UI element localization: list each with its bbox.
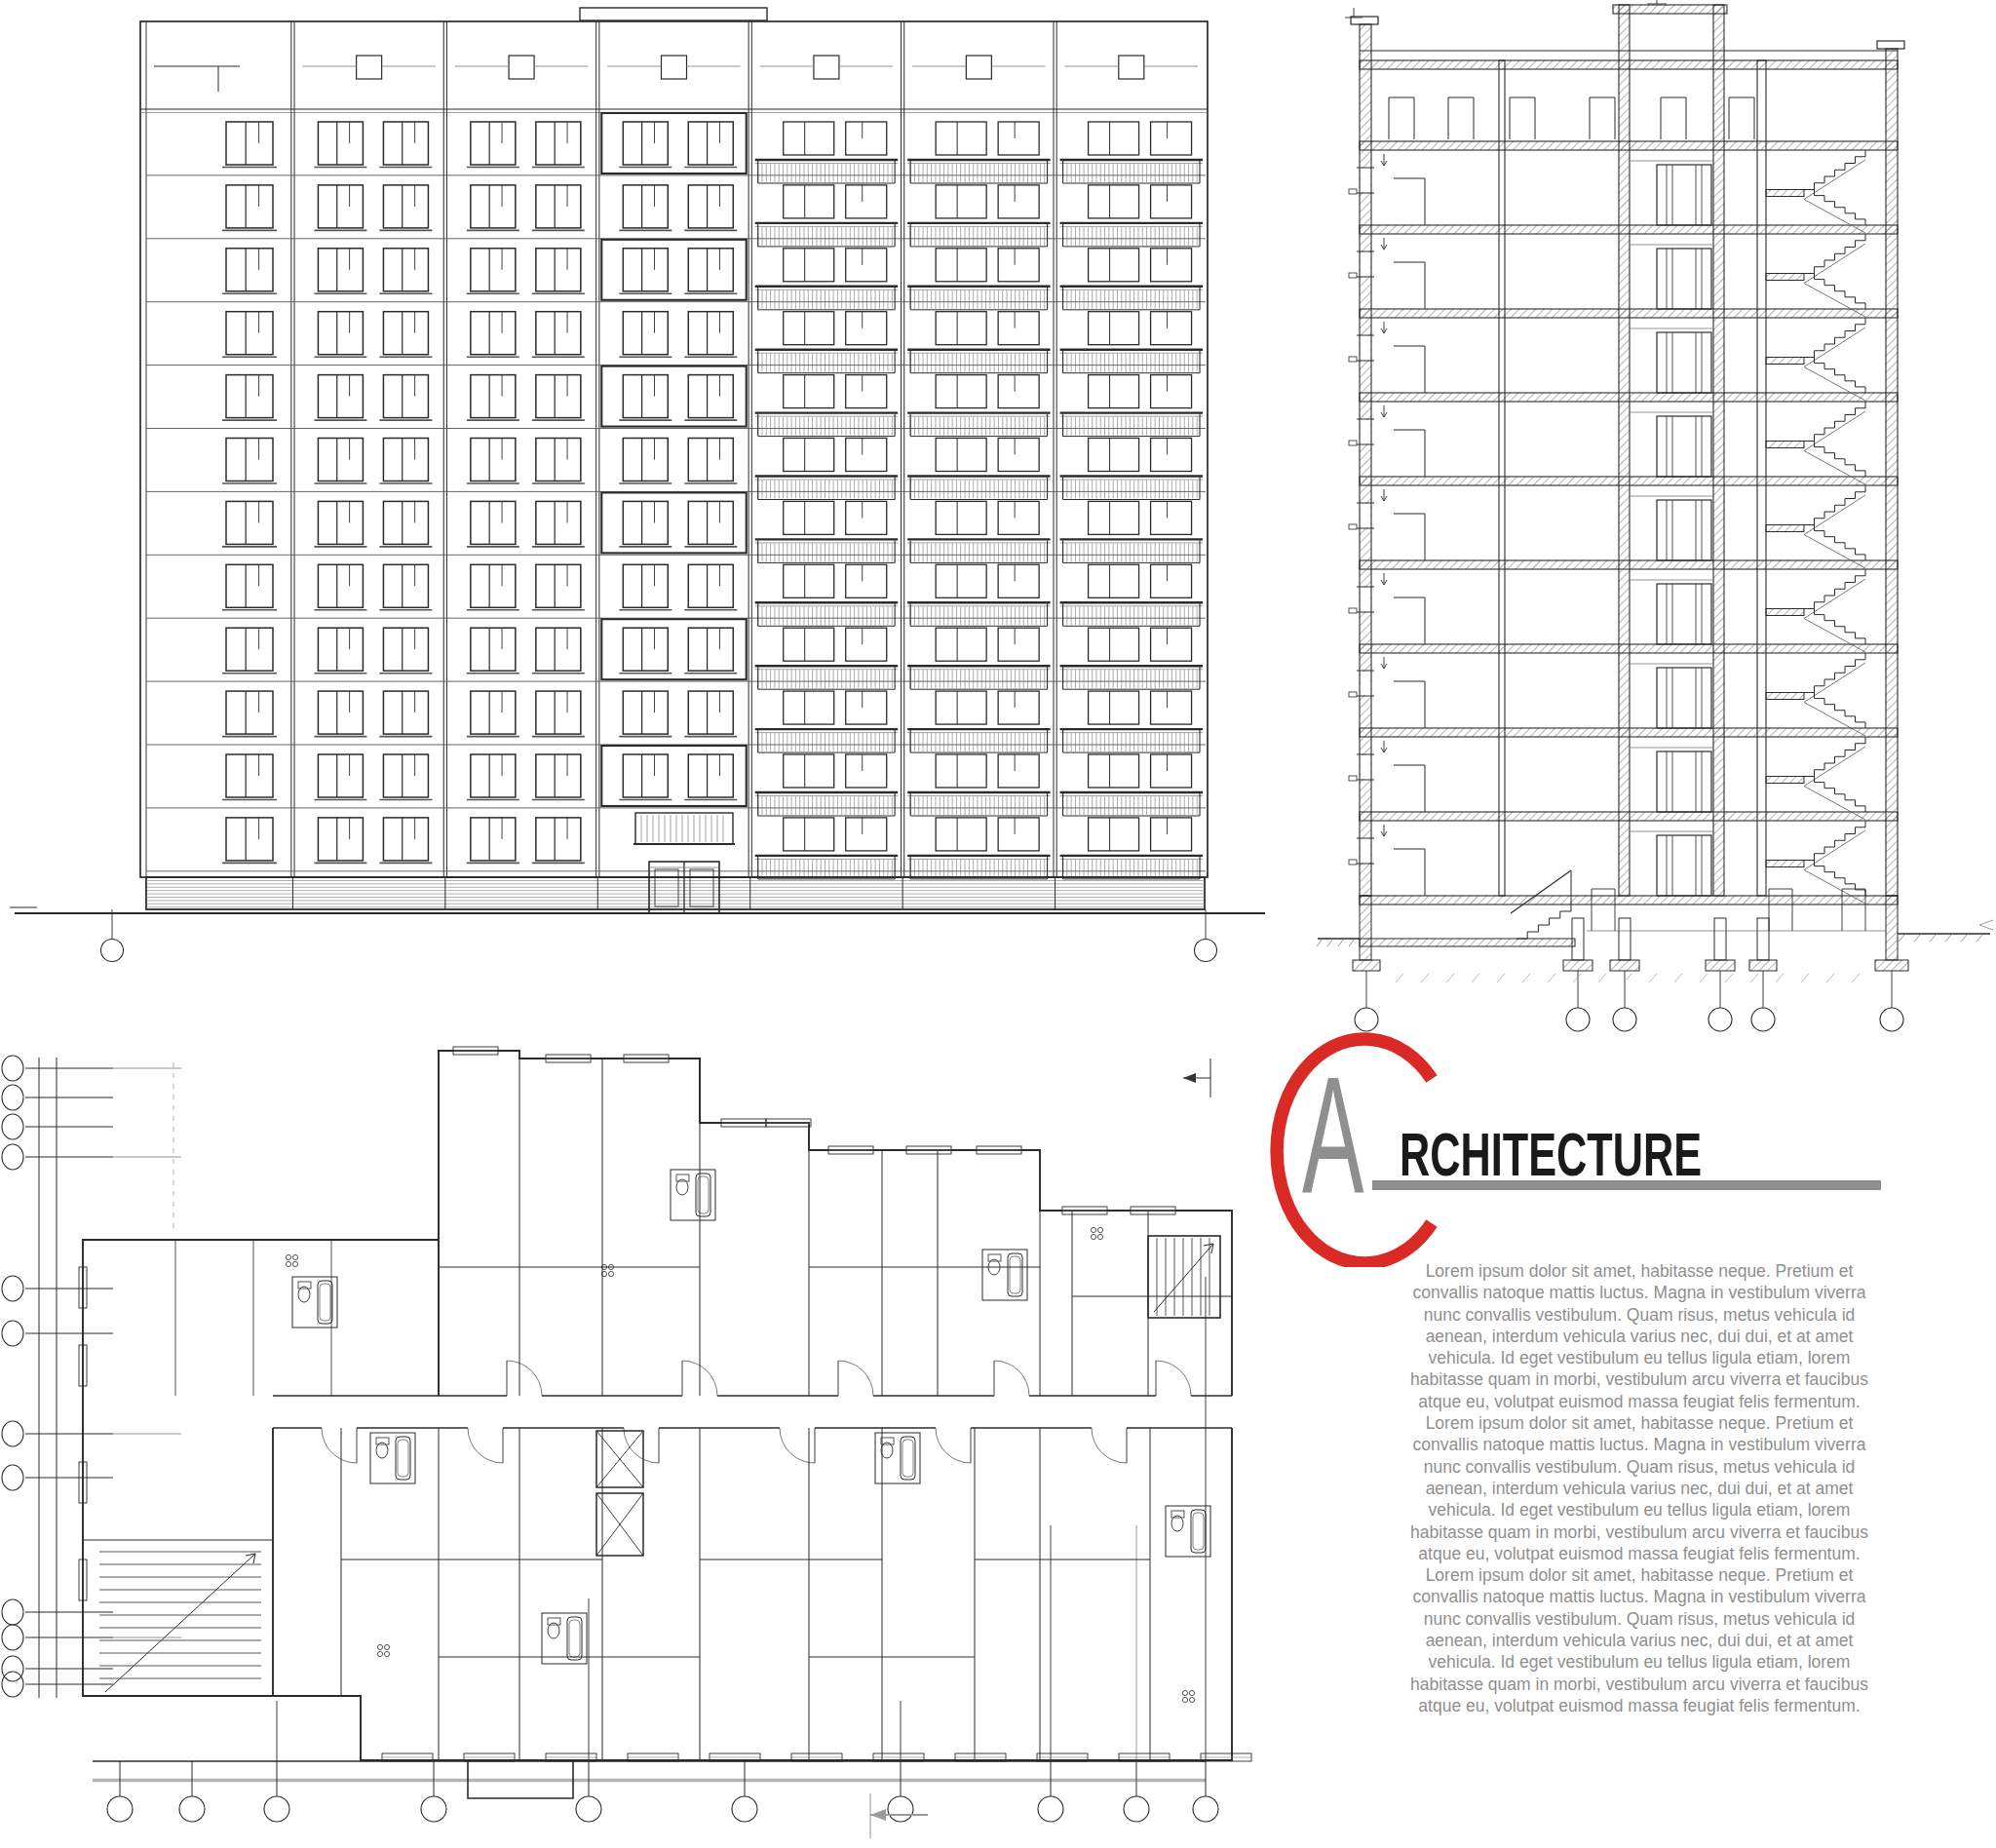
lorem-paragraph-line: aenean, interdum vehicula varius nec, du… <box>1384 1326 1895 1347</box>
lorem-paragraph-line: aenean, interdum vehicula varius nec, du… <box>1384 1630 1895 1651</box>
lorem-paragraph-line: habitasse quam in morbi, vestibulum arcu… <box>1384 1674 1895 1695</box>
lorem-paragraph-line: nunc convallis vestibulum. Quam risus, m… <box>1384 1608 1895 1630</box>
building-elevation-drawing <box>0 0 1277 975</box>
lorem-paragraph-line: Lorem ipsum dolor sit amet, habitasse ne… <box>1384 1564 1895 1586</box>
floor-plan-drawing <box>0 1033 1277 1848</box>
logo-title: RCHITECTURE <box>1400 1120 1702 1188</box>
lorem-paragraph-line: convallis natoque mattis luctus. Magna i… <box>1384 1282 1895 1303</box>
logo-letter-a: A <box>1302 1042 1364 1227</box>
lorem-paragraph-line: convallis natoque mattis luctus. Magna i… <box>1384 1434 1895 1455</box>
lorem-paragraph-line: vehicula. Id eget vestibulum eu tellus l… <box>1384 1499 1895 1521</box>
architecture-logo: A RCHITECTURE <box>1257 1023 1920 1267</box>
lorem-paragraph-line: habitasse quam in morbi, vestibulum arcu… <box>1384 1521 1895 1543</box>
logo-underline <box>1372 1180 1881 1190</box>
lorem-paragraph-line: atque eu, volutpat euismod massa feugiat… <box>1384 1695 1895 1716</box>
lorem-paragraph-line: Lorem ipsum dolor sit amet, habitasse ne… <box>1384 1260 1895 1282</box>
lorem-paragraph-line: habitasse quam in morbi, vestibulum arcu… <box>1384 1368 1895 1390</box>
lorem-paragraph-line: nunc convallis vestibulum. Quam risus, m… <box>1384 1456 1895 1478</box>
lorem-paragraph-line: vehicula. Id eget vestibulum eu tellus l… <box>1384 1651 1895 1673</box>
lorem-paragraph-line: vehicula. Id eget vestibulum eu tellus l… <box>1384 1347 1895 1368</box>
lorem-paragraph-line: nunc convallis vestibulum. Quam risus, m… <box>1384 1304 1895 1326</box>
blueprint-sheet: A RCHITECTURE Lorem ipsum dolor sit amet… <box>0 0 1996 1848</box>
building-section-drawing <box>1316 0 1996 1033</box>
lorem-paragraph-line: convallis natoque mattis luctus. Magna i… <box>1384 1586 1895 1607</box>
lorem-paragraph-line: atque eu, volutpat euismod massa feugiat… <box>1384 1543 1895 1564</box>
lorem-paragraph-line: atque eu, volutpat euismod massa feugiat… <box>1384 1391 1895 1412</box>
lorem-text-block: Lorem ipsum dolor sit amet, habitasse ne… <box>1384 1260 1895 1716</box>
lorem-paragraph-line: aenean, interdum vehicula varius nec, du… <box>1384 1478 1895 1499</box>
lorem-paragraph-line: Lorem ipsum dolor sit amet, habitasse ne… <box>1384 1412 1895 1434</box>
